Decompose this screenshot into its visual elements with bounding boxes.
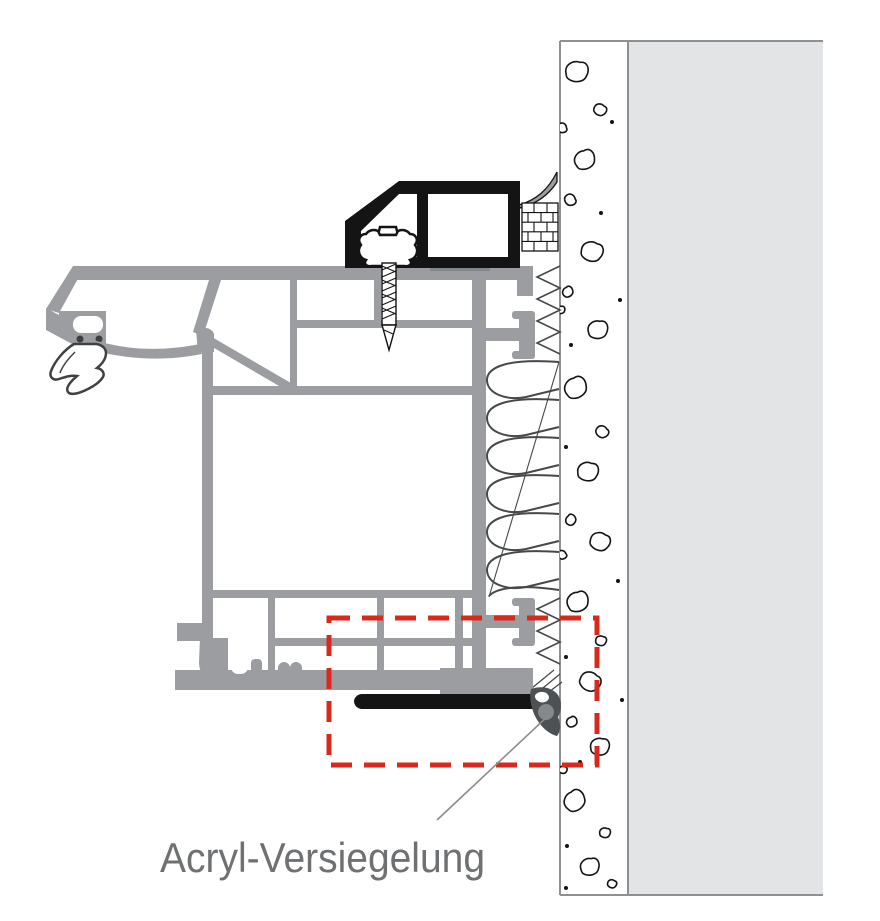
frame-nose-slot [73,316,103,333]
frame-web-v5 [455,598,463,672]
seal-label: Acryl-Versiegelung [160,834,485,881]
insulation-zigzag-lower [537,598,560,664]
fastening-screw [382,263,396,350]
frame-web-v3 [268,598,275,672]
technical-drawing-canvas: Acryl-Versiegelung [0,0,880,921]
brick-infill [522,203,558,251]
frame-web-diagonal-left [193,280,221,336]
frame-web-h4 [268,638,472,646]
frame-web-h3 [206,590,472,598]
insulation-zigzag-upper [537,266,560,354]
fastening-clip [359,227,417,266]
frame-web-v4 [377,598,384,672]
plaster-layer [628,41,823,895]
wall-anchor-lower [486,598,535,646]
frame-right-wall [472,280,486,672]
sill-hook-foot [199,638,228,678]
frame-web-v2 [374,280,381,328]
gasket-ridges [278,662,302,672]
wall-anchor-upper [486,311,535,359]
sill-hook-notch [231,651,248,674]
frame-web-h2 [206,386,472,395]
glazing-gasket [50,344,106,394]
frame-nose-slope [46,266,85,313]
window-install-section-drawing: Acryl-Versiegelung [0,0,880,921]
insulation-coils [487,361,559,597]
sill-hook-nub [251,659,262,673]
bottom-seal-strip [354,694,553,709]
frame-bottom-plate-right [440,668,533,694]
window-frame-profile [46,263,533,694]
rail-cavity-right [428,194,508,257]
frame-web-v1 [290,280,297,393]
